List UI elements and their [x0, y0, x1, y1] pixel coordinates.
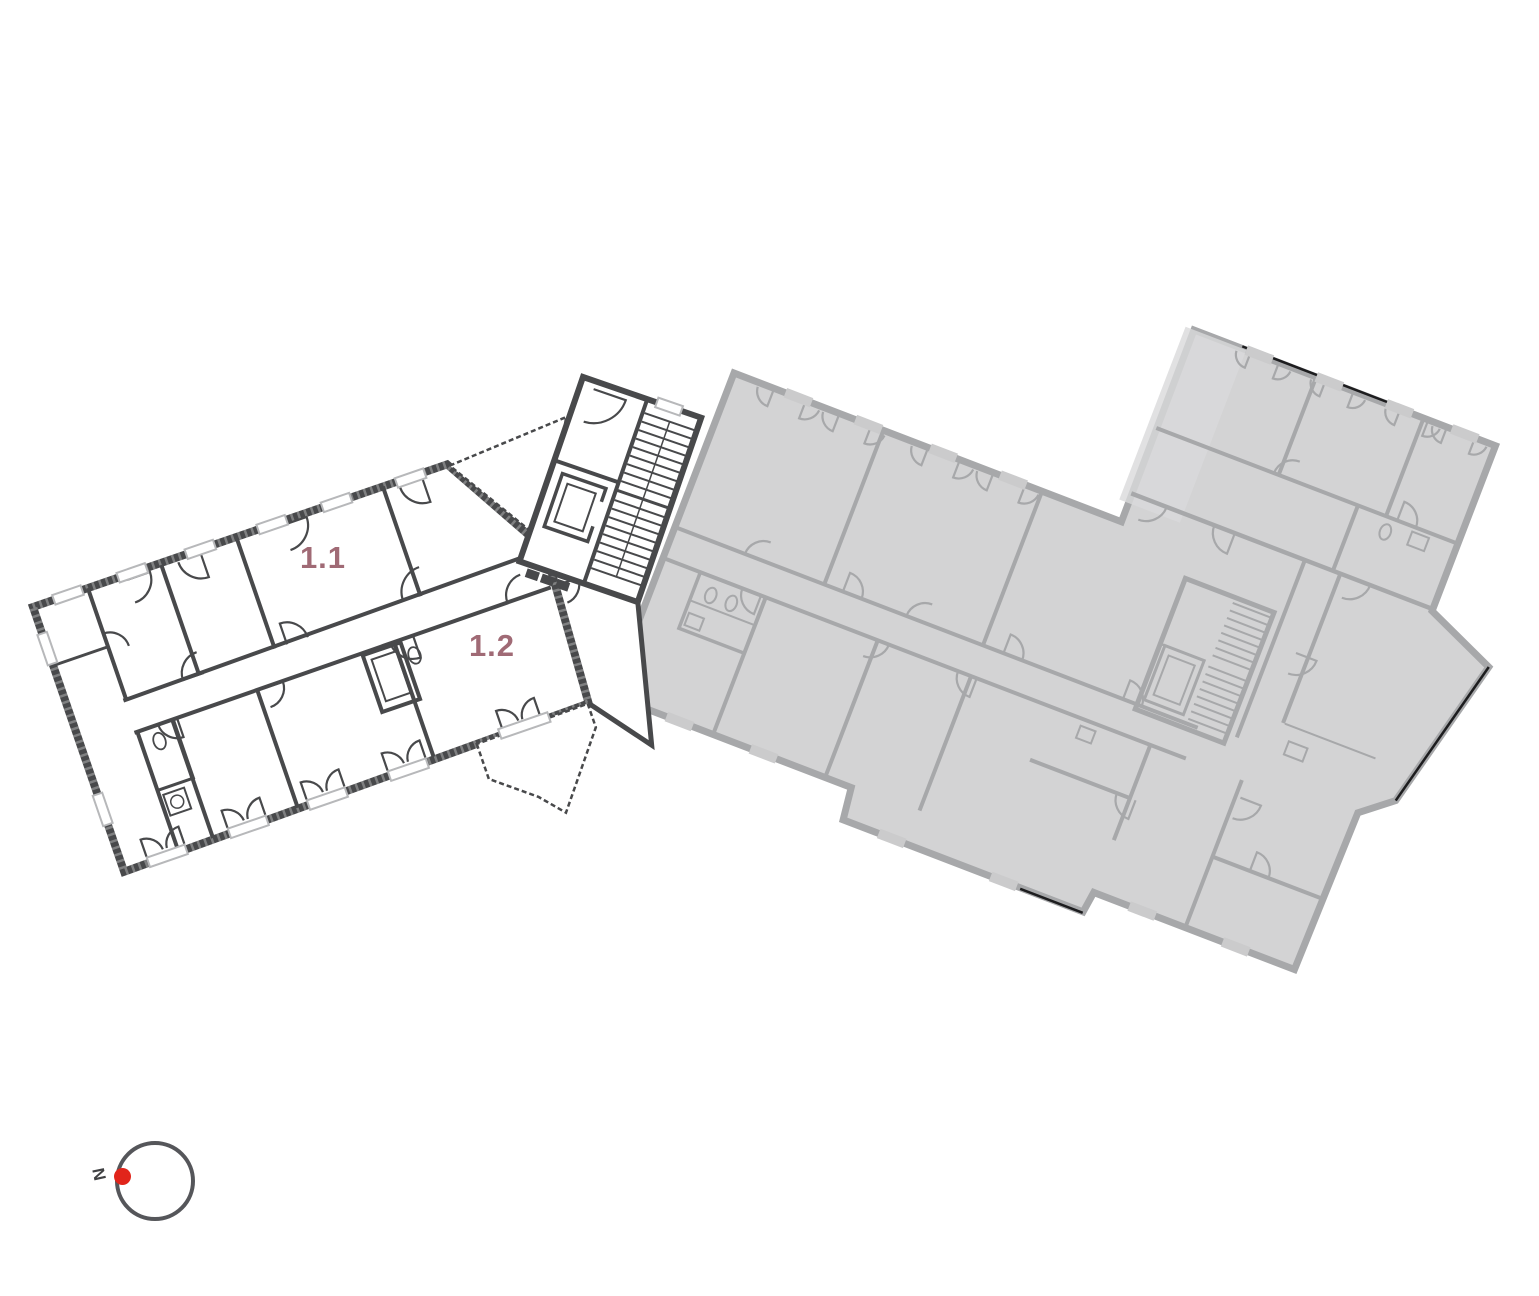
- inactive-building-plan: [597, 177, 1539, 1021]
- compass-north-dot: [114, 1168, 131, 1185]
- unit-1-1-label[interactable]: 1.1: [300, 540, 346, 575]
- inactive-building-outline: [599, 182, 1539, 1017]
- floor-plan-canvas: 1.1 1.2 N: [0, 0, 1539, 1296]
- unit-1-2-label[interactable]: 1.2: [469, 628, 515, 663]
- floor-plan-page: 1.1 1.2 N: [0, 0, 1539, 1296]
- compass-north-label: N: [89, 1166, 110, 1182]
- compass: N: [89, 1143, 193, 1219]
